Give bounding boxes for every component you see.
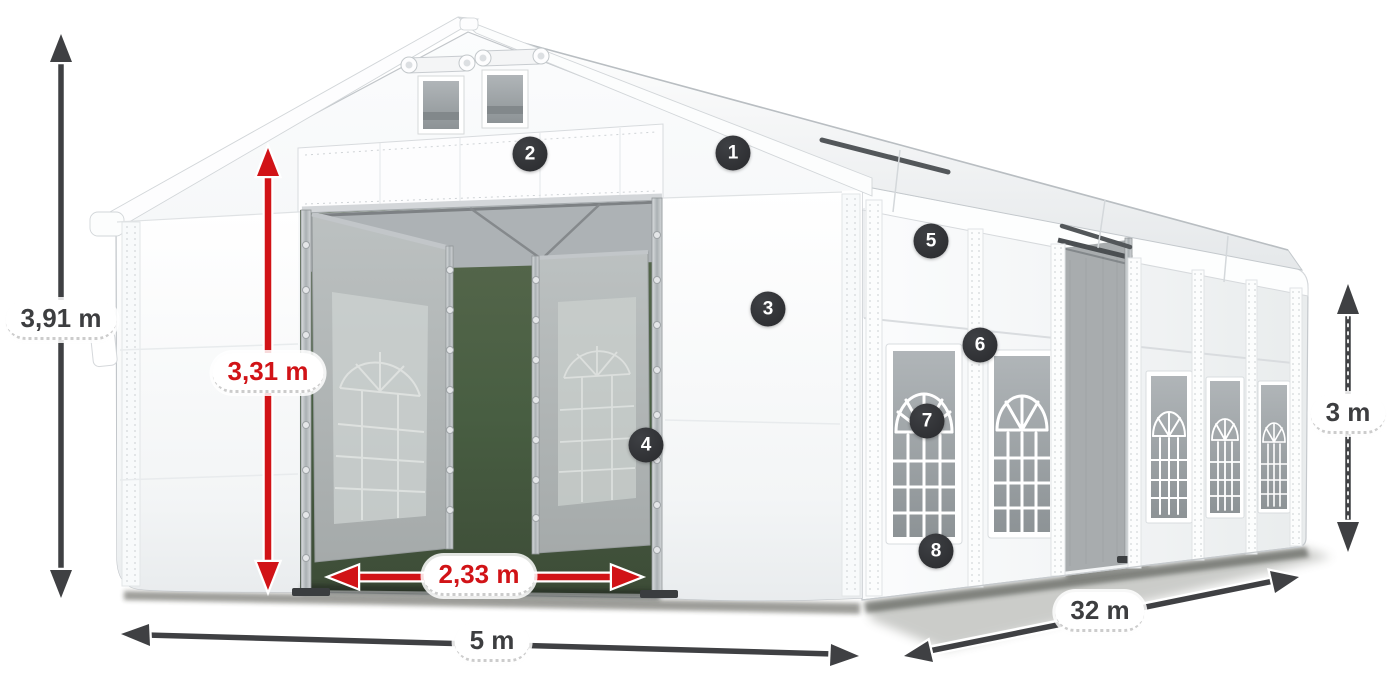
callout-badge-3[interactable]: 3 [751,292,786,327]
callout-badge-2[interactable]: 2 [513,137,548,172]
entrance [292,197,678,600]
callout-badge-1[interactable]: 1 [716,136,751,171]
callout-badge-6[interactable]: 6 [963,328,998,363]
dimension-label-entrance-height: 3,31 m [213,353,324,393]
entrance-door-left[interactable] [312,214,454,562]
callout-badge-8[interactable]: 8 [919,534,954,569]
dimension-label-side-height: 3 m [1311,394,1386,434]
front-wall-right [663,190,862,601]
dimension-label-total-height: 3,91 m [6,300,117,340]
callout-badge-5[interactable]: 5 [914,224,949,259]
tent-dimension-diagram: 3,91 m 3,31 m 2,33 m 5 m 32 m 3 m 1 2 3 … [0,0,1400,700]
callout-badge-7[interactable]: 7 [910,404,945,439]
tent-illustration [0,0,1400,700]
entrance-door-right[interactable] [532,252,650,554]
side-window-1 [886,344,962,544]
dimension-label-front-width: 5 m [455,622,530,662]
side-window-5 [1258,381,1290,513]
callout-badge-4[interactable]: 4 [629,428,664,463]
side-window-3 [1146,371,1192,523]
side-window-4 [1206,377,1244,518]
dimension-label-entrance-width: 2,33 m [424,556,535,596]
dimension-label-side-length: 32 m [1055,592,1144,632]
side-window-2 [988,350,1056,538]
